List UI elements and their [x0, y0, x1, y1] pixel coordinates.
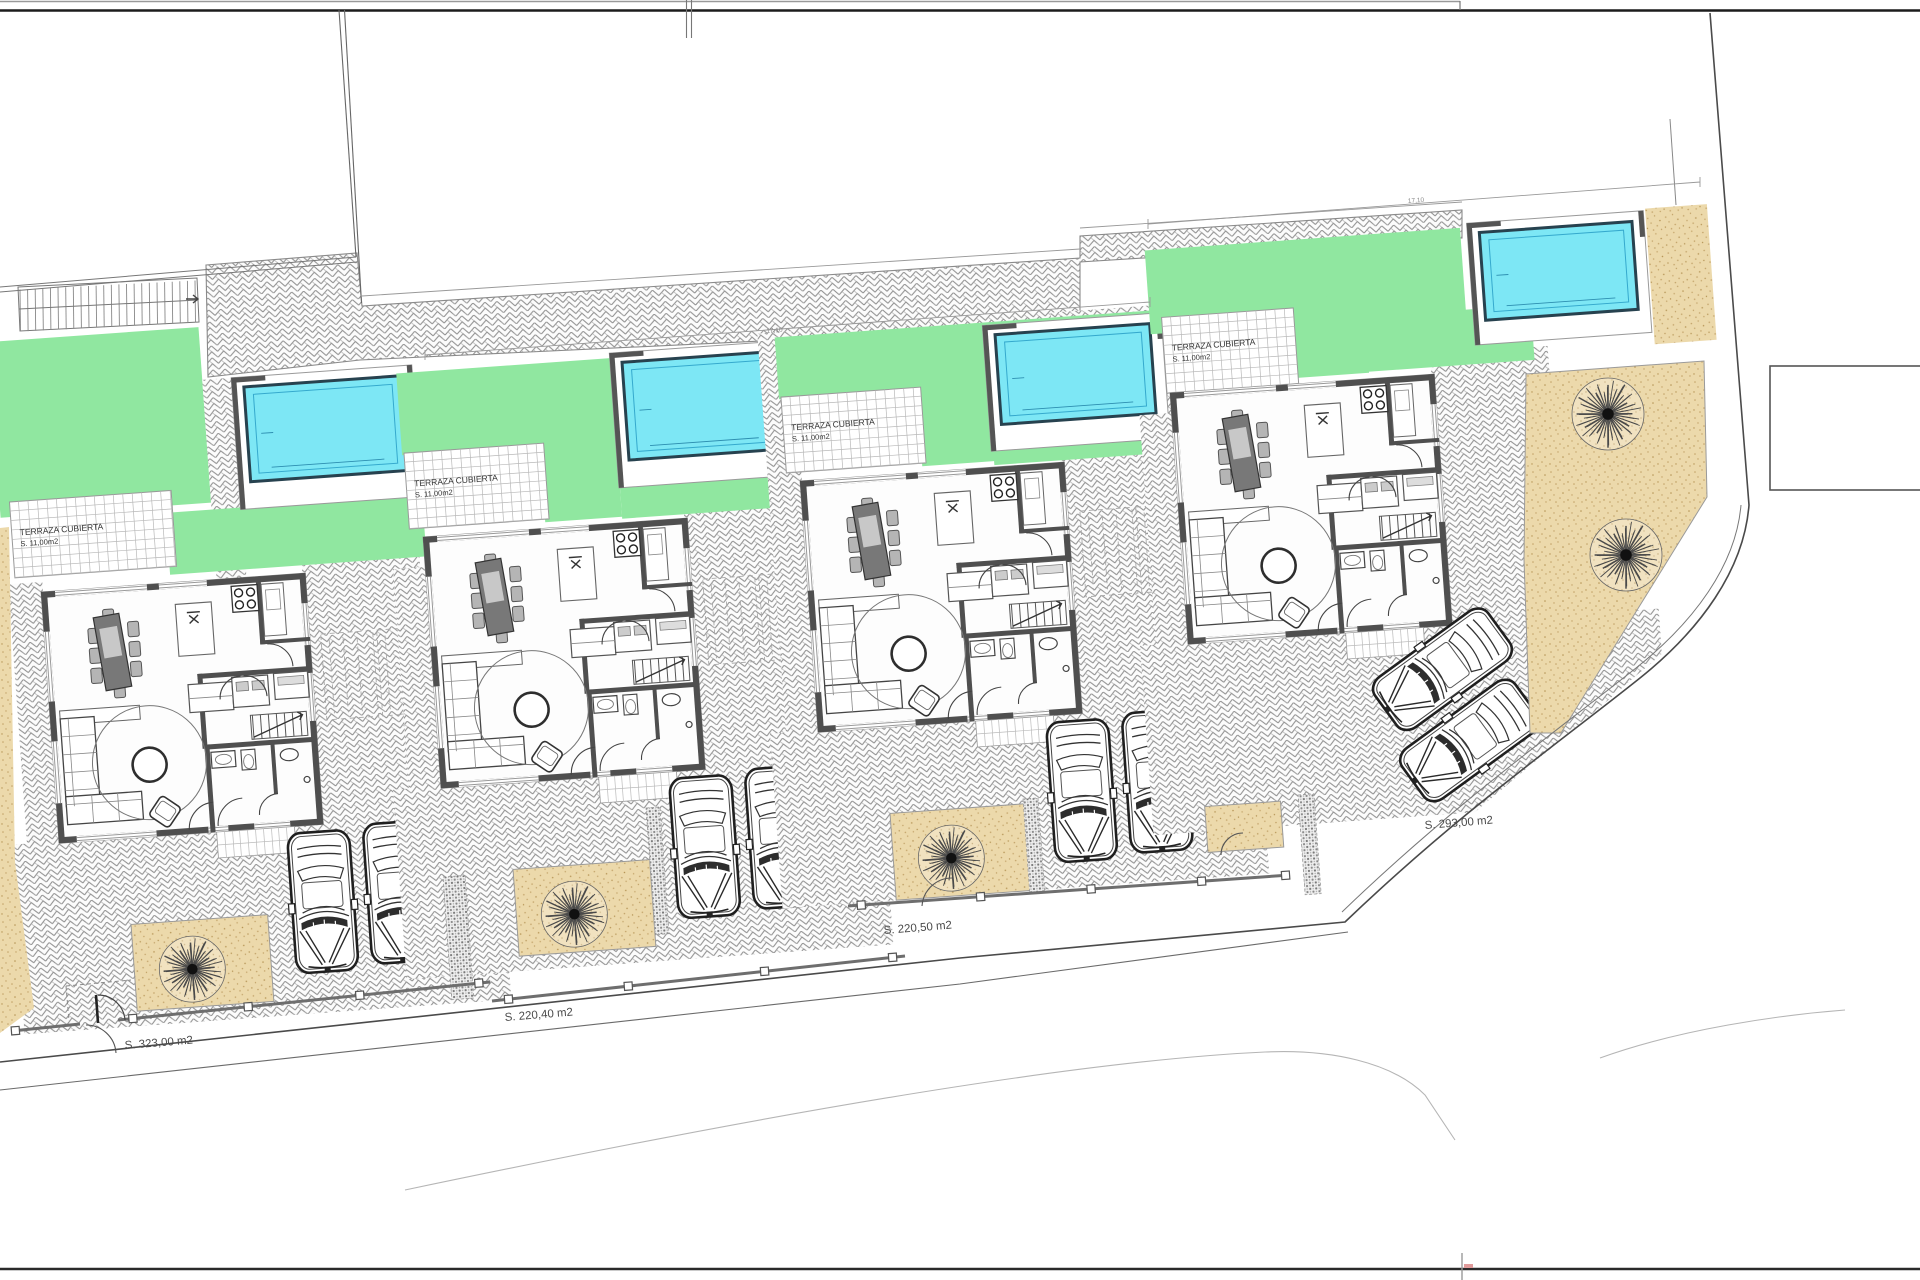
- svg-text:17,10: 17,10: [1408, 197, 1425, 205]
- svg-text:17,10: 17,10: [766, 327, 783, 335]
